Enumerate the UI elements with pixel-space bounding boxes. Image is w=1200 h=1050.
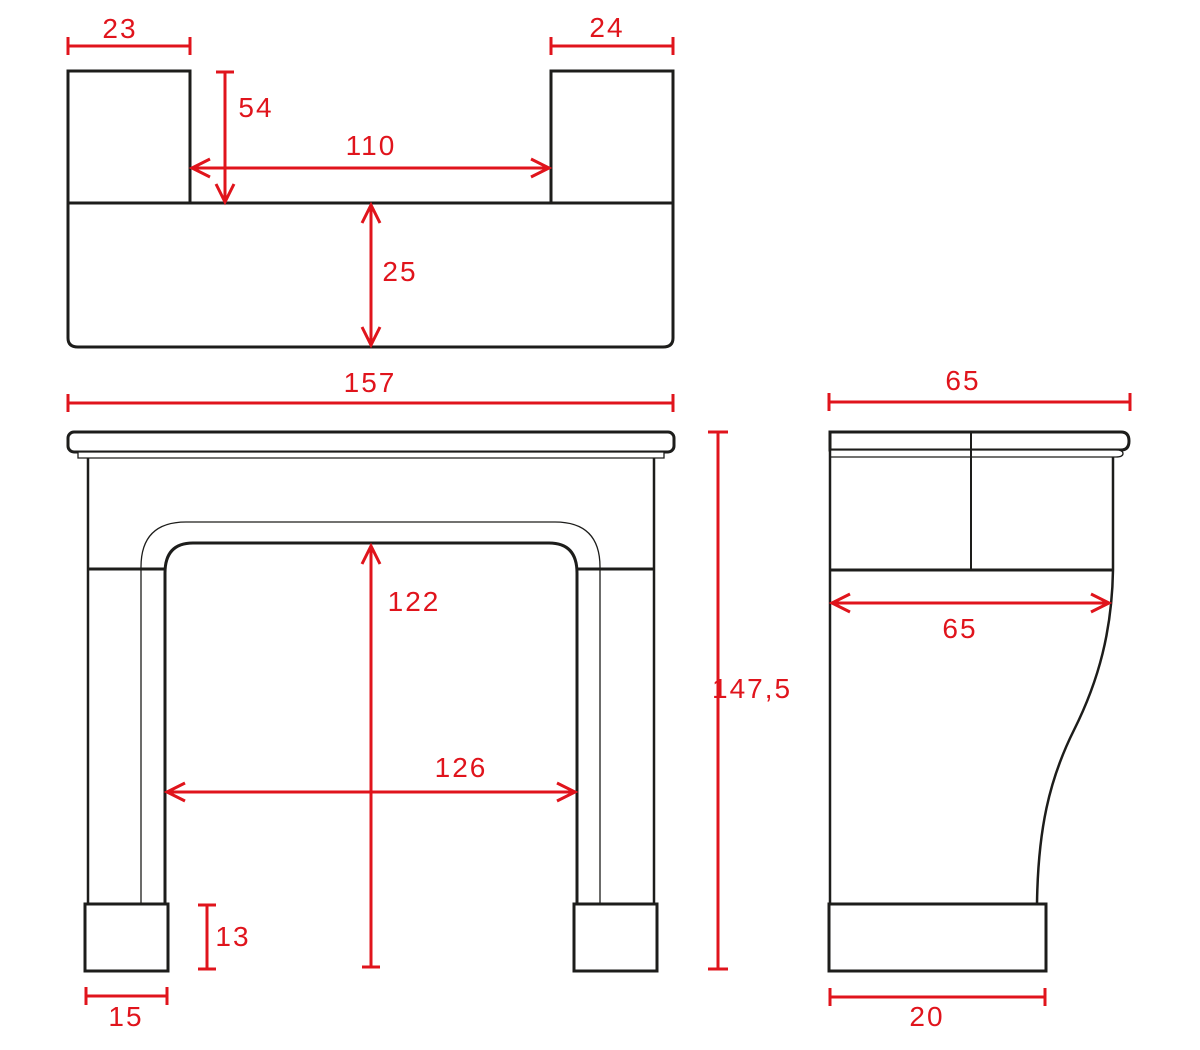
dim-label-24: 24 — [589, 12, 624, 43]
side-shelf — [830, 432, 1129, 450]
dim-line — [216, 72, 234, 200]
dim-block-depth: 54 — [216, 72, 274, 202]
dim-label-15: 15 — [108, 1001, 143, 1032]
dim-label-110: 110 — [346, 130, 397, 161]
front-left-plinth — [85, 904, 168, 971]
dim-label-65-top: 65 — [945, 365, 980, 396]
dim-label-23: 23 — [102, 13, 137, 44]
dim-label-126: 126 — [435, 752, 488, 783]
side-plinth — [829, 904, 1046, 971]
dim-overall-width: 157 — [68, 367, 673, 412]
dim-label-25: 25 — [382, 256, 417, 287]
dim-right-block-width: 24 — [551, 12, 673, 55]
dim-label-20: 20 — [909, 1001, 944, 1032]
dim-label-13: 13 — [215, 921, 250, 952]
dim-side-body-depth: 65 — [832, 594, 1109, 644]
front-right-plinth — [574, 904, 657, 971]
top-view-left-block — [68, 71, 190, 203]
dim-label-157: 157 — [344, 367, 397, 398]
dim-side-top-width: 65 — [829, 365, 1130, 411]
dim-line — [198, 905, 216, 969]
side-view — [829, 432, 1129, 971]
dim-label-65-mid: 65 — [942, 613, 977, 644]
dim-between-blocks: 110 — [192, 130, 549, 177]
dim-left-block-width: 23 — [68, 13, 190, 55]
front-shelf — [68, 432, 674, 452]
dim-line — [362, 548, 380, 967]
dim-label-54: 54 — [238, 92, 273, 123]
dim-plinth-height: 13 — [198, 905, 251, 969]
side-console-curve — [1037, 570, 1113, 904]
dim-opening-height: 122 — [362, 546, 440, 967]
technical-drawing-page: 23 24 54 110 25 157 — [0, 0, 1200, 1050]
dim-side-plinth-width: 20 — [830, 988, 1045, 1032]
front-shelf-lip — [78, 452, 664, 458]
dim-label-122: 122 — [388, 586, 441, 617]
side-shelf-lip — [830, 450, 1123, 457]
dim-label-147-5: 147,5 — [712, 673, 792, 704]
dim-overall-height: 147,5 — [708, 432, 792, 969]
dim-plinth-width: 15 — [86, 987, 167, 1032]
top-view-right-block — [551, 71, 673, 203]
technical-drawing-canvas: 23 24 54 110 25 157 — [0, 0, 1200, 1050]
